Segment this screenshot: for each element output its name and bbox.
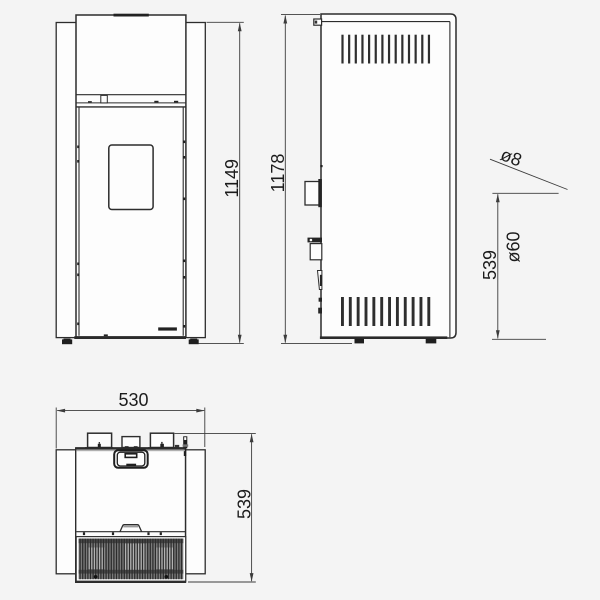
svg-text:539: 539: [234, 489, 254, 519]
svg-text:ø60: ø60: [504, 231, 524, 262]
svg-text:530: 530: [118, 390, 148, 410]
svg-text:1149: 1149: [222, 159, 242, 198]
svg-text:539: 539: [480, 250, 500, 280]
svg-text:ø8: ø8: [498, 144, 525, 170]
svg-text:1178: 1178: [268, 154, 288, 193]
